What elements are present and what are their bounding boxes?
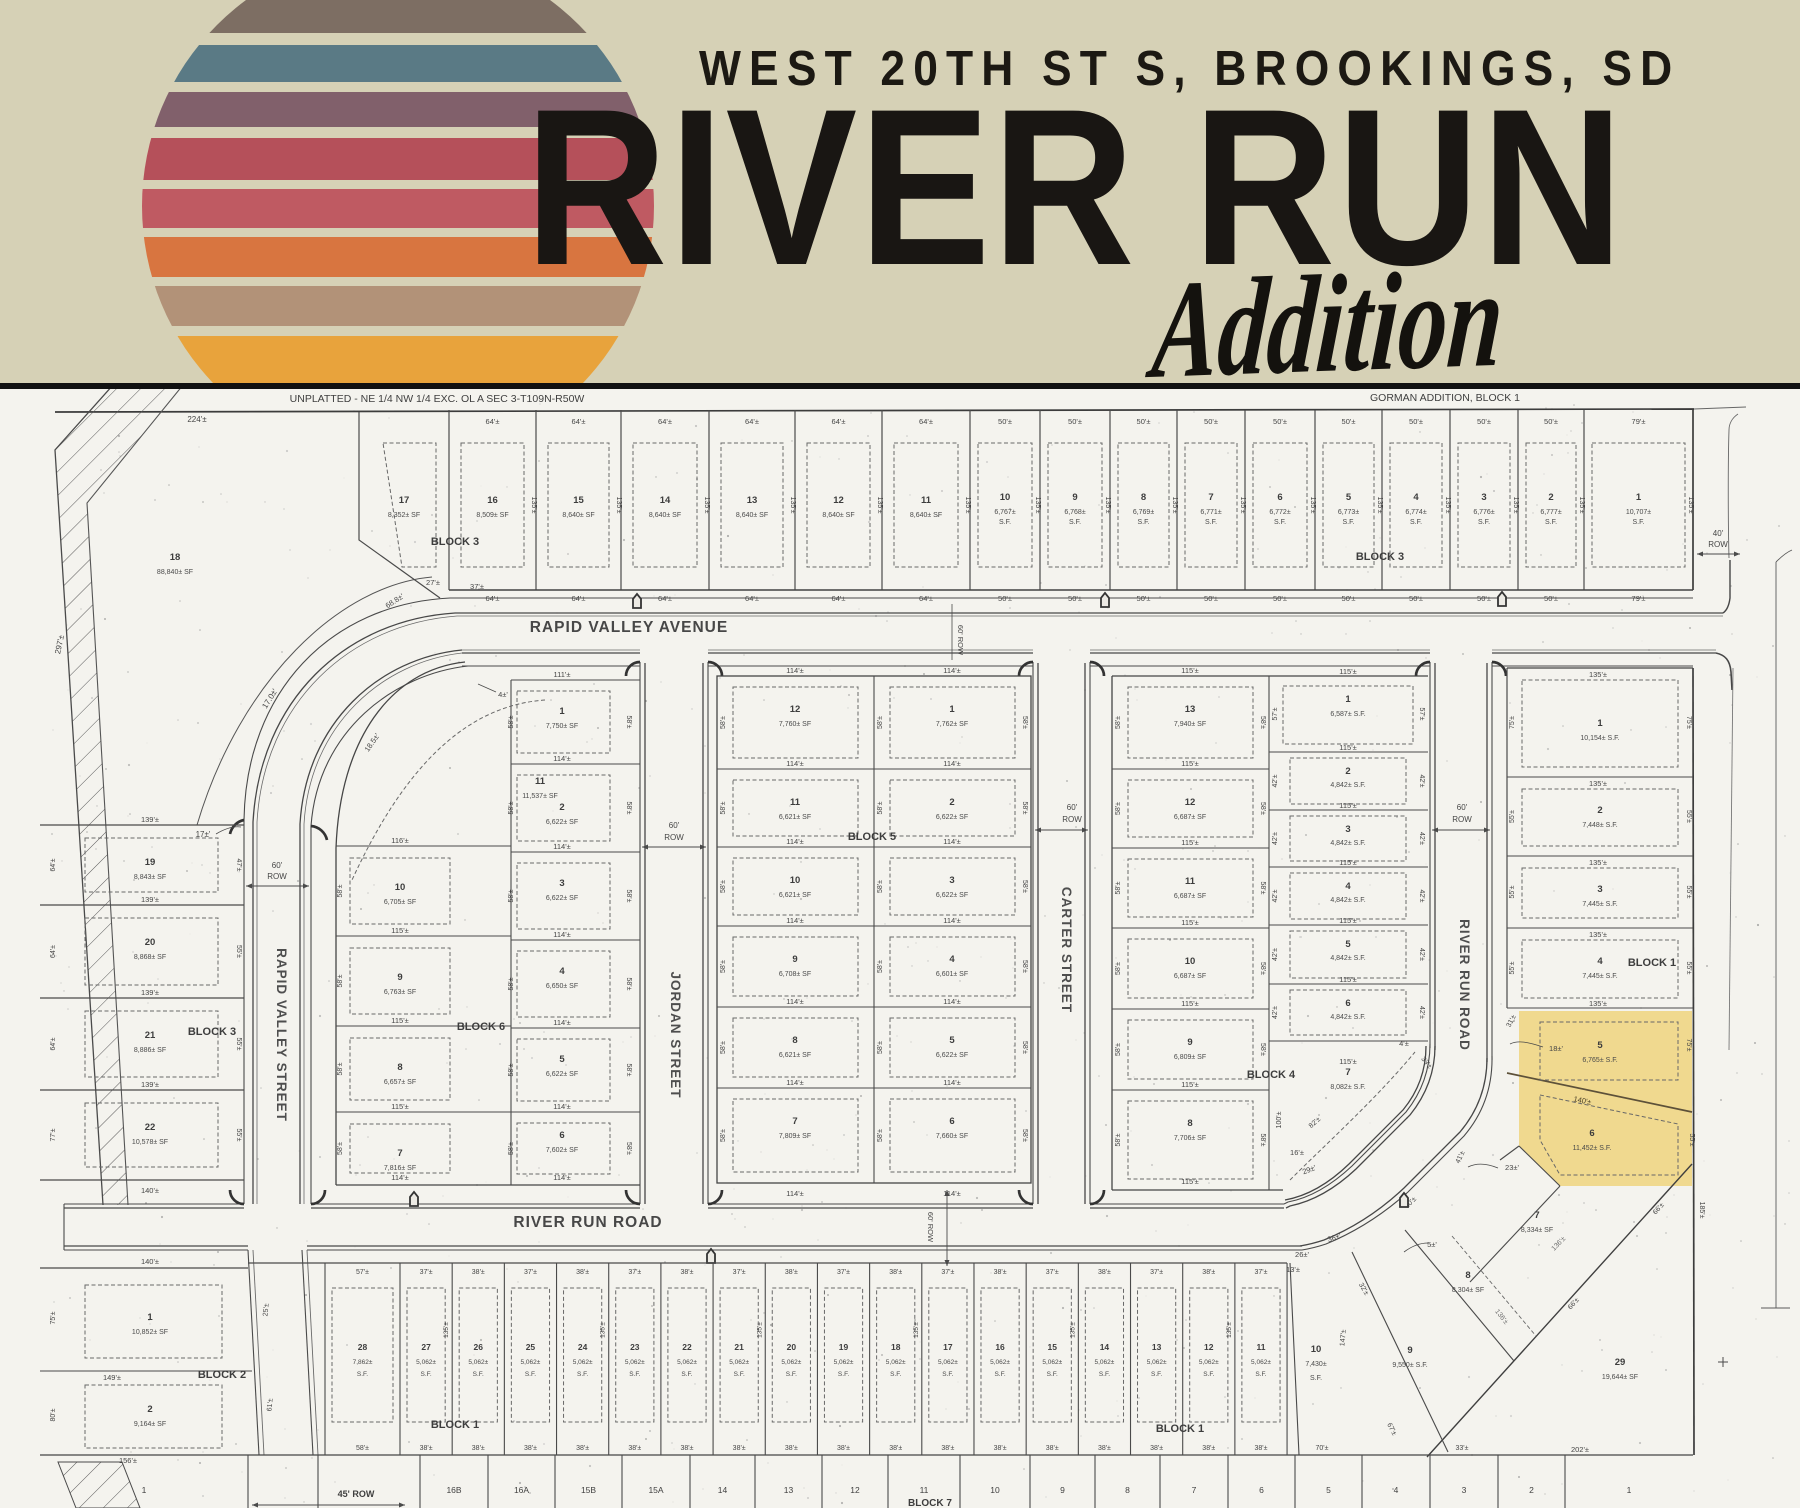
svg-text:47'±: 47'± bbox=[235, 859, 242, 872]
svg-text:4: 4 bbox=[559, 966, 565, 977]
svg-text:50'±: 50'± bbox=[1273, 417, 1287, 426]
svg-text:ROW: ROW bbox=[1062, 815, 1082, 824]
svg-text:5,062±: 5,062± bbox=[677, 1359, 697, 1366]
svg-text:ROW: ROW bbox=[1708, 540, 1728, 549]
svg-text:BLOCK 3: BLOCK 3 bbox=[431, 536, 479, 548]
svg-text:58'±: 58'± bbox=[720, 880, 727, 893]
svg-text:23±': 23±' bbox=[1505, 1163, 1519, 1172]
svg-text:114'±: 114'± bbox=[943, 1189, 961, 1198]
svg-text:RIVER RUN ROAD: RIVER RUN ROAD bbox=[513, 1214, 662, 1231]
svg-text:114'±: 114'± bbox=[943, 666, 961, 675]
svg-text:6,771±: 6,771± bbox=[1200, 509, 1222, 516]
svg-text:GORMAN ADDITION, BLOCK 1: GORMAN ADDITION, BLOCK 1 bbox=[1370, 392, 1520, 404]
svg-text:139'±: 139'± bbox=[141, 895, 159, 904]
svg-text:S.F.: S.F. bbox=[1274, 519, 1286, 526]
svg-text:S.F.: S.F. bbox=[1151, 1371, 1162, 1378]
svg-text:38'±: 38'± bbox=[576, 1445, 589, 1452]
svg-text:17±': 17±' bbox=[196, 830, 211, 839]
svg-text:50'±: 50'± bbox=[1068, 594, 1082, 603]
svg-text:38'±: 38'± bbox=[889, 1445, 902, 1452]
svg-text:55'±: 55'± bbox=[1509, 961, 1516, 974]
svg-text:BLOCK 5: BLOCK 5 bbox=[848, 831, 896, 843]
svg-text:RAPID VALLEY STREET: RAPID VALLEY STREET bbox=[274, 948, 289, 1122]
svg-text:1: 1 bbox=[142, 1485, 147, 1495]
svg-text:58'±: 58'± bbox=[1115, 881, 1122, 894]
svg-text:4,842± S.F.: 4,842± S.F. bbox=[1330, 897, 1365, 904]
svg-text:7,445± S.F.: 7,445± S.F. bbox=[1582, 901, 1617, 908]
svg-text:64'±: 64'± bbox=[745, 417, 759, 426]
svg-text:UNPLATTED - NE 1/4 NW 1/4 EXC.: UNPLATTED - NE 1/4 NW 1/4 EXC. OL A SEC … bbox=[290, 393, 585, 405]
svg-text:7: 7 bbox=[792, 1116, 797, 1127]
svg-text:115'±: 115'± bbox=[1181, 999, 1199, 1008]
svg-text:58'±: 58'± bbox=[1115, 1133, 1122, 1146]
svg-text:6,622± SF: 6,622± SF bbox=[936, 814, 968, 821]
svg-text:6,776±: 6,776± bbox=[1473, 509, 1495, 516]
svg-text:15B: 15B bbox=[581, 1485, 596, 1495]
svg-text:12: 12 bbox=[833, 495, 844, 506]
svg-text:58'±: 58'± bbox=[1115, 716, 1122, 729]
svg-text:8: 8 bbox=[397, 1062, 402, 1073]
svg-text:11: 11 bbox=[1185, 876, 1196, 887]
svg-text:147'±: 147'± bbox=[1339, 1329, 1347, 1347]
svg-text:114'±: 114'± bbox=[786, 759, 804, 768]
svg-text:RIVER RUN ROAD: RIVER RUN ROAD bbox=[1457, 919, 1472, 1051]
svg-text:13: 13 bbox=[784, 1485, 794, 1495]
svg-text:38'±: 38'± bbox=[1098, 1445, 1111, 1452]
svg-text:4: 4 bbox=[1413, 492, 1419, 503]
svg-text:3: 3 bbox=[949, 875, 954, 886]
svg-text:37'±: 37'± bbox=[837, 1269, 850, 1276]
svg-text:50'±: 50'± bbox=[1477, 594, 1491, 603]
svg-text:115'±: 115'± bbox=[391, 1102, 409, 1111]
svg-text:115'±: 115'± bbox=[1181, 1177, 1199, 1186]
svg-text:38'±: 38'± bbox=[524, 1445, 537, 1452]
svg-text:6,772±: 6,772± bbox=[1269, 509, 1291, 516]
svg-text:9: 9 bbox=[1187, 1037, 1192, 1048]
svg-text:37'±: 37'± bbox=[1254, 1269, 1267, 1276]
svg-text:3: 3 bbox=[1481, 492, 1486, 503]
svg-text:58'±: 58'± bbox=[337, 1142, 344, 1155]
svg-text:6,621± SF: 6,621± SF bbox=[779, 814, 811, 821]
svg-text:37'±: 37'± bbox=[420, 1269, 433, 1276]
svg-text:6,621± SF: 6,621± SF bbox=[779, 892, 811, 899]
svg-text:11,537± SF: 11,537± SF bbox=[522, 793, 558, 800]
svg-text:8: 8 bbox=[1125, 1485, 1130, 1495]
svg-text:19: 19 bbox=[839, 1342, 849, 1352]
svg-text:55'±: 55'± bbox=[235, 945, 242, 958]
svg-text:135'±: 135'± bbox=[1589, 858, 1607, 867]
svg-text:58'±: 58'± bbox=[625, 1064, 632, 1077]
svg-text:28: 28 bbox=[358, 1342, 368, 1352]
svg-text:16: 16 bbox=[995, 1342, 1005, 1352]
svg-text:58'±: 58'± bbox=[337, 884, 344, 897]
svg-text:8,640± SF: 8,640± SF bbox=[649, 512, 681, 519]
svg-text:S.F.: S.F. bbox=[1069, 519, 1081, 526]
svg-text:5,062±: 5,062± bbox=[1147, 1359, 1167, 1366]
svg-text:58'±: 58'± bbox=[625, 802, 632, 815]
svg-text:50'±: 50'± bbox=[1204, 417, 1218, 426]
svg-text:114'±: 114'± bbox=[553, 754, 571, 763]
svg-text:38'±: 38'± bbox=[472, 1269, 485, 1276]
svg-text:26±': 26±' bbox=[1295, 1250, 1309, 1259]
svg-text:135'±: 135'± bbox=[703, 497, 710, 514]
svg-text:114'±: 114'± bbox=[786, 837, 804, 846]
svg-text:2: 2 bbox=[949, 797, 954, 808]
svg-text:10: 10 bbox=[1000, 492, 1011, 503]
svg-text:64'±: 64'± bbox=[832, 594, 846, 603]
svg-text:7: 7 bbox=[1208, 492, 1213, 503]
svg-text:135'±: 135'± bbox=[1069, 1322, 1076, 1338]
svg-text:S.F.: S.F. bbox=[1310, 1375, 1322, 1382]
svg-text:50'±: 50'± bbox=[1409, 417, 1423, 426]
svg-text:6,601± SF: 6,601± SF bbox=[936, 971, 968, 978]
svg-text:11: 11 bbox=[921, 495, 932, 506]
svg-text:114'±: 114'± bbox=[553, 1173, 571, 1182]
svg-text:7: 7 bbox=[1192, 1485, 1197, 1495]
svg-text:21: 21 bbox=[145, 1030, 156, 1041]
svg-text:6,650± SF: 6,650± SF bbox=[546, 983, 578, 990]
svg-text:38'±: 38'± bbox=[1046, 1445, 1059, 1452]
svg-text:135'±: 135'± bbox=[1589, 779, 1607, 788]
svg-text:11: 11 bbox=[1256, 1342, 1265, 1352]
svg-text:BLOCK 4: BLOCK 4 bbox=[1247, 1069, 1296, 1081]
svg-text:38'±: 38'± bbox=[941, 1445, 954, 1452]
svg-text:9: 9 bbox=[792, 954, 797, 965]
svg-text:115'±: 115'± bbox=[1181, 918, 1199, 927]
svg-text:58'±: 58'± bbox=[1115, 962, 1122, 975]
svg-text:8,886± SF: 8,886± SF bbox=[134, 1047, 166, 1054]
svg-text:10: 10 bbox=[1185, 956, 1196, 967]
svg-text:BLOCK 1: BLOCK 1 bbox=[431, 1419, 479, 1431]
svg-text:15A: 15A bbox=[648, 1485, 663, 1495]
svg-text:135'±: 135'± bbox=[1034, 497, 1041, 514]
svg-text:58'±: 58'± bbox=[1021, 880, 1028, 893]
svg-text:22: 22 bbox=[145, 1122, 156, 1133]
svg-text:1: 1 bbox=[1636, 492, 1642, 503]
svg-text:4: 4 bbox=[949, 954, 955, 965]
svg-text:2: 2 bbox=[1529, 1485, 1534, 1495]
svg-text:S.F.: S.F. bbox=[1545, 519, 1557, 526]
svg-text:6,774±: 6,774± bbox=[1405, 509, 1427, 516]
svg-text:42'±: 42'± bbox=[1272, 832, 1279, 845]
svg-text:8,334± SF: 8,334± SF bbox=[1521, 1227, 1553, 1234]
svg-text:38'±: 38'± bbox=[1202, 1445, 1215, 1452]
svg-text:S.F.: S.F. bbox=[420, 1371, 431, 1378]
svg-text:S.F.: S.F. bbox=[1203, 1371, 1214, 1378]
svg-text:5,062±: 5,062± bbox=[886, 1359, 906, 1366]
svg-text:6,768±: 6,768± bbox=[1064, 509, 1086, 516]
svg-text:4: 4 bbox=[1345, 881, 1351, 892]
svg-text:6,622± SF: 6,622± SF bbox=[936, 892, 968, 899]
svg-text:10: 10 bbox=[990, 1485, 1000, 1495]
svg-text:58'±: 58'± bbox=[877, 801, 884, 814]
svg-text:50'±: 50'± bbox=[1137, 417, 1151, 426]
svg-text:27: 27 bbox=[421, 1342, 431, 1352]
svg-text:S.F.: S.F. bbox=[525, 1371, 536, 1378]
svg-text:4: 4 bbox=[1597, 956, 1603, 967]
svg-text:S.F.: S.F. bbox=[994, 1371, 1005, 1378]
svg-text:10: 10 bbox=[1311, 1344, 1322, 1355]
svg-text:115'±: 115'± bbox=[1339, 743, 1357, 752]
svg-text:8: 8 bbox=[1465, 1270, 1470, 1281]
svg-text:139'±: 139'± bbox=[141, 988, 159, 997]
svg-text:50'±: 50'± bbox=[1477, 417, 1491, 426]
svg-text:3: 3 bbox=[1597, 884, 1602, 895]
svg-text:38'±: 38'± bbox=[994, 1445, 1007, 1452]
svg-text:3: 3 bbox=[559, 878, 564, 889]
svg-text:6,687± SF: 6,687± SF bbox=[1174, 973, 1206, 980]
svg-text:6: 6 bbox=[1345, 998, 1350, 1009]
svg-text:17: 17 bbox=[399, 495, 410, 506]
svg-text:114'±: 114'± bbox=[943, 759, 961, 768]
svg-text:S.F.: S.F. bbox=[1410, 519, 1422, 526]
svg-text:29: 29 bbox=[1615, 1357, 1626, 1368]
svg-text:5,062±: 5,062± bbox=[573, 1359, 593, 1366]
svg-text:5: 5 bbox=[1345, 939, 1351, 950]
svg-text:BLOCK 1: BLOCK 1 bbox=[1628, 957, 1676, 969]
svg-text:135'±: 135'± bbox=[756, 1322, 763, 1338]
svg-text:55'±: 55'± bbox=[235, 1129, 242, 1142]
svg-text:7,750± SF: 7,750± SF bbox=[546, 723, 578, 730]
svg-text:64'±: 64'± bbox=[919, 417, 933, 426]
svg-text:140'±: 140'± bbox=[141, 1257, 159, 1266]
svg-text:10,707±: 10,707± bbox=[1626, 509, 1651, 516]
svg-text:50'±: 50'± bbox=[1342, 594, 1356, 603]
svg-text:3: 3 bbox=[1345, 824, 1350, 835]
svg-text:5,062±: 5,062± bbox=[625, 1359, 645, 1366]
svg-text:S.F.: S.F. bbox=[1047, 1371, 1058, 1378]
svg-text:114'±: 114'± bbox=[786, 916, 804, 925]
svg-text:64'±: 64'± bbox=[658, 417, 672, 426]
svg-text:58'±: 58'± bbox=[625, 1142, 632, 1155]
svg-text:14: 14 bbox=[660, 495, 671, 506]
svg-text:12: 12 bbox=[1185, 797, 1196, 808]
svg-text:114'±: 114'± bbox=[391, 1173, 409, 1182]
svg-text:1: 1 bbox=[147, 1312, 153, 1323]
svg-text:37'±: 37'± bbox=[1150, 1269, 1163, 1276]
svg-text:135'±: 135'± bbox=[1239, 497, 1246, 514]
svg-text:8,868± SF: 8,868± SF bbox=[134, 954, 166, 961]
svg-text:7,940± SF: 7,940± SF bbox=[1174, 721, 1206, 728]
svg-text:42'±: 42'± bbox=[1418, 948, 1425, 961]
svg-text:S.F.: S.F. bbox=[786, 1371, 797, 1378]
svg-text:S.F.: S.F. bbox=[1342, 519, 1354, 526]
svg-text:S.F.: S.F. bbox=[357, 1371, 368, 1378]
svg-text:114'±: 114'± bbox=[786, 1189, 804, 1198]
svg-text:115'±: 115'± bbox=[1181, 1080, 1199, 1089]
svg-text:75'±: 75'± bbox=[50, 1311, 57, 1324]
svg-text:11: 11 bbox=[535, 776, 546, 787]
svg-text:58'±: 58'± bbox=[720, 1129, 727, 1142]
svg-text:38'±: 38'± bbox=[681, 1269, 694, 1276]
svg-text:38'±: 38'± bbox=[994, 1269, 1007, 1276]
svg-text:58'±: 58'± bbox=[508, 1142, 515, 1155]
svg-text:80'±: 80'± bbox=[50, 1408, 57, 1421]
svg-text:60' ROW: 60' ROW bbox=[926, 1212, 935, 1243]
svg-text:S.F.: S.F. bbox=[473, 1371, 484, 1378]
svg-text:55'±: 55'± bbox=[1685, 810, 1692, 823]
svg-text:S.F.: S.F. bbox=[734, 1371, 745, 1378]
svg-text:57'±: 57'± bbox=[1272, 707, 1279, 720]
svg-text:38'±: 38'± bbox=[576, 1269, 589, 1276]
svg-text:14: 14 bbox=[718, 1485, 728, 1495]
svg-text:6: 6 bbox=[1277, 492, 1282, 503]
svg-text:5,062±: 5,062± bbox=[416, 1359, 436, 1366]
svg-text:38'±: 38'± bbox=[1150, 1445, 1163, 1452]
svg-text:5,062±: 5,062± bbox=[990, 1359, 1010, 1366]
svg-text:42'±: 42'± bbox=[1418, 1006, 1425, 1019]
svg-text:77'±: 77'± bbox=[50, 1128, 57, 1141]
svg-text:S.F.: S.F. bbox=[838, 1371, 849, 1378]
svg-text:58'±: 58'± bbox=[1115, 1043, 1122, 1056]
svg-text:42'±: 42'± bbox=[1418, 775, 1425, 788]
svg-text:4,842± S.F.: 4,842± S.F. bbox=[1330, 955, 1365, 962]
svg-text:37'±: 37'± bbox=[733, 1269, 746, 1276]
svg-text:64'±: 64'± bbox=[745, 594, 759, 603]
svg-text:37'±: 37'± bbox=[628, 1269, 641, 1276]
svg-text:42'±: 42'± bbox=[1418, 890, 1425, 903]
svg-text:115'±: 115'± bbox=[391, 1016, 409, 1025]
svg-text:115'±: 115'± bbox=[1339, 801, 1357, 810]
svg-text:7: 7 bbox=[397, 1148, 402, 1159]
svg-text:58'±: 58'± bbox=[1021, 802, 1028, 815]
svg-text:135'±: 135'± bbox=[1578, 497, 1585, 514]
svg-text:S.F.: S.F. bbox=[942, 1371, 953, 1378]
svg-text:114'±: 114'± bbox=[786, 997, 804, 1006]
svg-text:58'±: 58'± bbox=[508, 801, 515, 814]
svg-text:7,862±: 7,862± bbox=[353, 1359, 373, 1366]
svg-text:5: 5 bbox=[1597, 1040, 1603, 1051]
svg-text:6,765± S.F.: 6,765± S.F. bbox=[1582, 1057, 1617, 1064]
svg-text:CARTER STREET: CARTER STREET bbox=[1059, 887, 1074, 1013]
svg-text:50'±: 50'± bbox=[1068, 417, 1082, 426]
svg-text:9,550± S.F.: 9,550± S.F. bbox=[1392, 1362, 1427, 1369]
svg-text:115'±: 115'± bbox=[1339, 975, 1357, 984]
svg-text:16: 16 bbox=[487, 495, 498, 506]
svg-text:115'±: 115'± bbox=[1339, 916, 1357, 925]
svg-text:58'±: 58'± bbox=[1259, 802, 1266, 815]
svg-text:70'±: 70'± bbox=[1316, 1445, 1329, 1452]
svg-text:1: 1 bbox=[949, 704, 955, 715]
svg-text:11: 11 bbox=[920, 1485, 929, 1495]
svg-text:37'±: 37'± bbox=[524, 1269, 537, 1276]
svg-text:ROW: ROW bbox=[267, 872, 287, 881]
svg-text:16A: 16A bbox=[514, 1485, 529, 1495]
svg-text:58'±: 58'± bbox=[877, 1129, 884, 1142]
svg-text:58'±: 58'± bbox=[508, 977, 515, 990]
svg-text:55'±: 55'± bbox=[235, 1038, 242, 1051]
svg-text:8,304± SF: 8,304± SF bbox=[1452, 1287, 1484, 1294]
svg-text:2: 2 bbox=[1548, 492, 1553, 503]
svg-text:185'±: 185'± bbox=[1698, 1202, 1705, 1219]
svg-text:6,809± SF: 6,809± SF bbox=[1174, 1054, 1206, 1061]
svg-text:58'±: 58'± bbox=[1259, 716, 1266, 729]
svg-text:149'±: 149'± bbox=[103, 1373, 121, 1382]
svg-text:8,640± SF: 8,640± SF bbox=[910, 512, 942, 519]
svg-text:7,430±: 7,430± bbox=[1305, 1361, 1327, 1368]
svg-text:8: 8 bbox=[1141, 492, 1146, 503]
svg-text:135'±: 135'± bbox=[1309, 497, 1316, 514]
svg-text:58'±: 58'± bbox=[720, 801, 727, 814]
svg-text:15: 15 bbox=[1048, 1342, 1058, 1352]
svg-text:13: 13 bbox=[1185, 704, 1196, 715]
svg-text:135'±: 135'± bbox=[789, 497, 796, 514]
svg-text:2: 2 bbox=[1597, 805, 1602, 816]
svg-text:37'±: 37'± bbox=[1046, 1269, 1059, 1276]
svg-text:5,062±: 5,062± bbox=[1042, 1359, 1062, 1366]
svg-text:135'±: 135'± bbox=[600, 1322, 607, 1338]
svg-text:58'±: 58'± bbox=[720, 716, 727, 729]
svg-text:7,762± SF: 7,762± SF bbox=[936, 721, 968, 728]
svg-text:135'±: 135'± bbox=[1376, 497, 1383, 514]
svg-text:111'±: 111'± bbox=[554, 670, 571, 679]
svg-text:60' ROW: 60' ROW bbox=[956, 625, 965, 656]
svg-text:10,852± SF: 10,852± SF bbox=[132, 1329, 168, 1336]
svg-text:58'±: 58'± bbox=[625, 716, 632, 729]
svg-text:115'±: 115'± bbox=[1339, 1057, 1357, 1066]
svg-text:6,767±: 6,767± bbox=[994, 509, 1016, 516]
svg-text:10: 10 bbox=[395, 882, 406, 893]
svg-text:115'±: 115'± bbox=[1181, 759, 1199, 768]
svg-text:4: 4 bbox=[1394, 1485, 1399, 1495]
svg-text:2: 2 bbox=[559, 802, 564, 813]
svg-text:S.F.: S.F. bbox=[1255, 1371, 1266, 1378]
svg-text:135'±: 135'± bbox=[876, 497, 883, 514]
svg-text:38'±: 38'± bbox=[785, 1269, 798, 1276]
svg-text:135'±: 135'± bbox=[443, 1322, 450, 1338]
svg-text:114'±: 114'± bbox=[553, 842, 571, 851]
svg-text:58'±: 58'± bbox=[508, 889, 515, 902]
svg-text:64'±: 64'± bbox=[486, 594, 500, 603]
svg-text:ROW: ROW bbox=[664, 833, 684, 842]
svg-text:55'±: 55'± bbox=[1688, 1134, 1695, 1147]
svg-text:60': 60' bbox=[272, 861, 283, 870]
svg-text:BLOCK 1: BLOCK 1 bbox=[1156, 1423, 1204, 1435]
svg-text:7,445± S.F.: 7,445± S.F. bbox=[1582, 973, 1617, 980]
svg-text:38'±: 38'± bbox=[785, 1445, 798, 1452]
svg-text:33'±: 33'± bbox=[1456, 1445, 1469, 1452]
svg-text:8: 8 bbox=[1187, 1118, 1192, 1129]
svg-text:5,062±: 5,062± bbox=[834, 1359, 854, 1366]
svg-text:50'±: 50'± bbox=[1273, 594, 1287, 603]
svg-text:7: 7 bbox=[1534, 1210, 1539, 1221]
svg-text:58'±: 58'± bbox=[877, 880, 884, 893]
svg-text:64'±: 64'± bbox=[50, 945, 57, 958]
svg-text:25: 25 bbox=[526, 1342, 536, 1352]
svg-text:114'±: 114'± bbox=[943, 916, 961, 925]
svg-text:12: 12 bbox=[850, 1485, 860, 1495]
svg-text:60': 60' bbox=[1067, 803, 1078, 812]
svg-text:4,842± S.F.: 4,842± S.F. bbox=[1330, 782, 1365, 789]
svg-text:64'±: 64'± bbox=[658, 594, 672, 603]
svg-text:23: 23 bbox=[630, 1342, 640, 1352]
svg-text:9: 9 bbox=[1407, 1345, 1412, 1356]
svg-text:6,687± SF: 6,687± SF bbox=[1174, 893, 1206, 900]
svg-text:9: 9 bbox=[1072, 492, 1077, 503]
svg-text:42'±: 42'± bbox=[1272, 774, 1279, 787]
svg-text:88,840± SF: 88,840± SF bbox=[157, 569, 193, 576]
svg-text:135'±: 135'± bbox=[1589, 670, 1607, 679]
svg-text:5,062±: 5,062± bbox=[781, 1359, 801, 1366]
svg-text:25'±: 25'± bbox=[262, 1303, 270, 1317]
svg-text:58'±: 58'± bbox=[1259, 962, 1266, 975]
svg-text:75'±: 75'± bbox=[1509, 716, 1516, 729]
svg-text:8,843± SF: 8,843± SF bbox=[134, 874, 166, 881]
svg-text:115'±: 115'± bbox=[1339, 667, 1357, 676]
svg-text:12: 12 bbox=[790, 704, 801, 715]
svg-text:58'±: 58'± bbox=[1259, 1134, 1266, 1147]
svg-text:5,062±: 5,062± bbox=[521, 1359, 541, 1366]
